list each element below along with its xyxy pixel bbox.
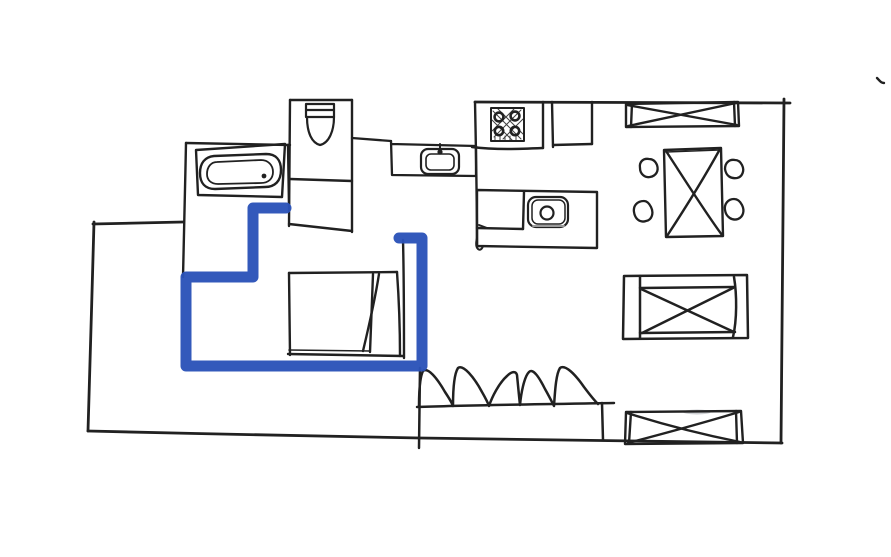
bed-top <box>289 272 397 273</box>
wall-top-left <box>93 222 183 224</box>
daybed-inner-bottom <box>640 332 735 333</box>
bathtub-drain <box>262 174 267 179</box>
bed-bottom-double <box>289 350 370 351</box>
daybed-inner-top <box>640 287 734 288</box>
floor-plan-canvas <box>0 0 891 557</box>
island-divider-h <box>477 228 523 229</box>
faucet-dot <box>437 149 442 154</box>
sofa-right-edge <box>602 403 603 440</box>
floor-plan-sketch <box>0 0 891 557</box>
bedroom-wall-right <box>403 240 404 358</box>
canvas-background <box>0 0 891 557</box>
shelf-end-right <box>734 102 735 126</box>
shelf-end-left <box>631 103 632 127</box>
counter-divider-2 <box>552 102 553 147</box>
bed-left <box>289 273 290 355</box>
bench-end-right <box>736 411 737 443</box>
counter-right-bottom <box>553 144 592 145</box>
island-divider-v <box>523 192 524 229</box>
